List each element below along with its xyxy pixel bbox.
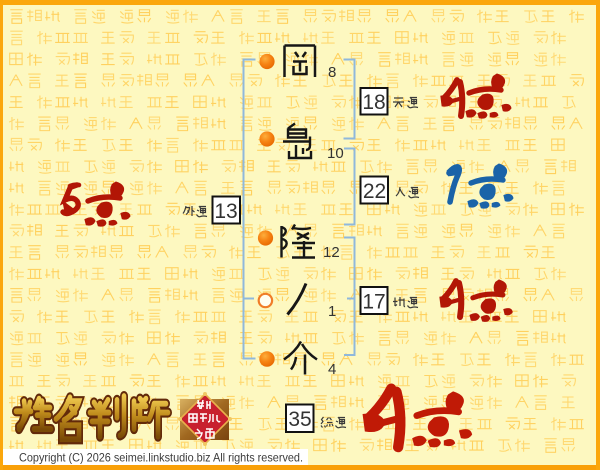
svg-text:1: 1 [328,303,336,320]
svg-text:22: 22 [363,180,386,203]
svg-text:13: 13 [214,200,237,223]
svg-text:8: 8 [328,64,336,81]
svg-text:35: 35 [288,408,311,431]
svg-text:12: 12 [323,244,340,261]
svg-text:4: 4 [328,361,336,378]
svg-text:17: 17 [362,291,385,314]
svg-text:18: 18 [362,91,385,114]
svg-text:10: 10 [327,145,344,162]
svg-text:Copyright (C) 2026 seimei.link: Copyright (C) 2026 seimei.linkstudio.biz… [19,451,303,465]
